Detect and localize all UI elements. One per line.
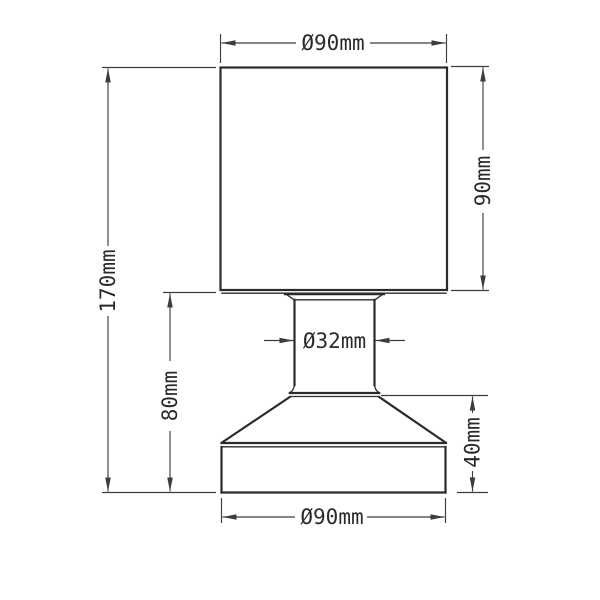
shade-outline: [221, 68, 448, 294]
base-diameter-label: Ø90mm: [300, 505, 363, 529]
shade-diameter-label: Ø90mm: [301, 31, 364, 55]
lamp-outline: [221, 68, 448, 493]
dim-lower-section-height: 80mm: [158, 293, 216, 492]
shade-height-label: 90mm: [471, 156, 495, 207]
dim-neck-diameter: Ø32mm: [264, 329, 405, 353]
lower-section-height-label: 80mm: [158, 371, 182, 422]
neck-diameter-label: Ø32mm: [303, 329, 366, 353]
dim-base-diameter: Ø90mm: [222, 498, 446, 529]
base-height-label: 40mm: [461, 417, 485, 468]
dim-total-height: 170mm: [96, 68, 216, 493]
base-cone-outline: [222, 397, 446, 443]
neck-flare-outline: [290, 385, 379, 397]
total-height-label: 170mm: [96, 249, 120, 312]
base-outline: [222, 443, 447, 493]
dim-shade-height: 90mm: [451, 67, 495, 291]
dimensions: Ø90mm 90mm 170mm 80mm: [96, 31, 495, 529]
lamp-dimension-drawing: Ø90mm 90mm 170mm 80mm: [0, 0, 600, 600]
dim-shade-diameter: Ø90mm: [221, 31, 447, 63]
shade-collar-outline: [285, 294, 384, 300]
